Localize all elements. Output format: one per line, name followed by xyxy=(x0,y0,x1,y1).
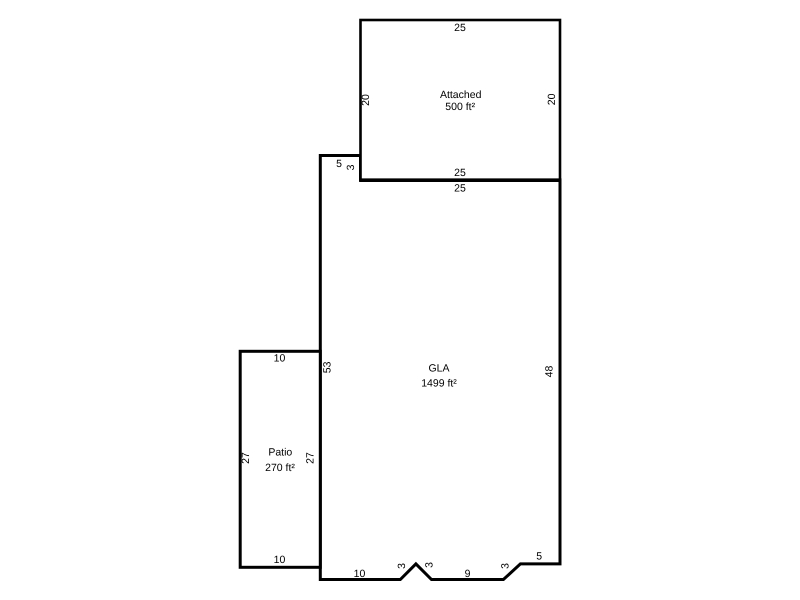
svg-text:GLA: GLA xyxy=(428,363,449,375)
svg-text:10: 10 xyxy=(354,568,366,580)
svg-text:1499 ft²: 1499 ft² xyxy=(421,377,457,389)
svg-text:3: 3 xyxy=(424,562,436,568)
svg-text:48: 48 xyxy=(544,366,556,378)
svg-text:53: 53 xyxy=(321,361,333,373)
svg-text:25: 25 xyxy=(454,22,466,34)
svg-text:Attached: Attached xyxy=(440,89,482,101)
svg-text:10: 10 xyxy=(274,554,286,566)
svg-text:27: 27 xyxy=(305,452,317,464)
svg-text:3: 3 xyxy=(345,164,357,170)
svg-text:5: 5 xyxy=(336,158,342,170)
svg-text:500 ft²: 500 ft² xyxy=(445,101,475,113)
svg-text:25: 25 xyxy=(454,183,466,195)
svg-text:10: 10 xyxy=(274,353,286,365)
svg-text:Patio: Patio xyxy=(268,447,292,459)
svg-text:9: 9 xyxy=(465,568,471,580)
svg-text:20: 20 xyxy=(546,93,558,105)
svg-text:27: 27 xyxy=(240,452,252,464)
svg-text:270 ft²: 270 ft² xyxy=(265,462,295,474)
svg-text:5: 5 xyxy=(536,551,542,563)
svg-text:3: 3 xyxy=(396,563,408,569)
svg-text:25: 25 xyxy=(454,167,466,179)
svg-text:3: 3 xyxy=(500,563,512,569)
svg-text:20: 20 xyxy=(360,94,372,106)
